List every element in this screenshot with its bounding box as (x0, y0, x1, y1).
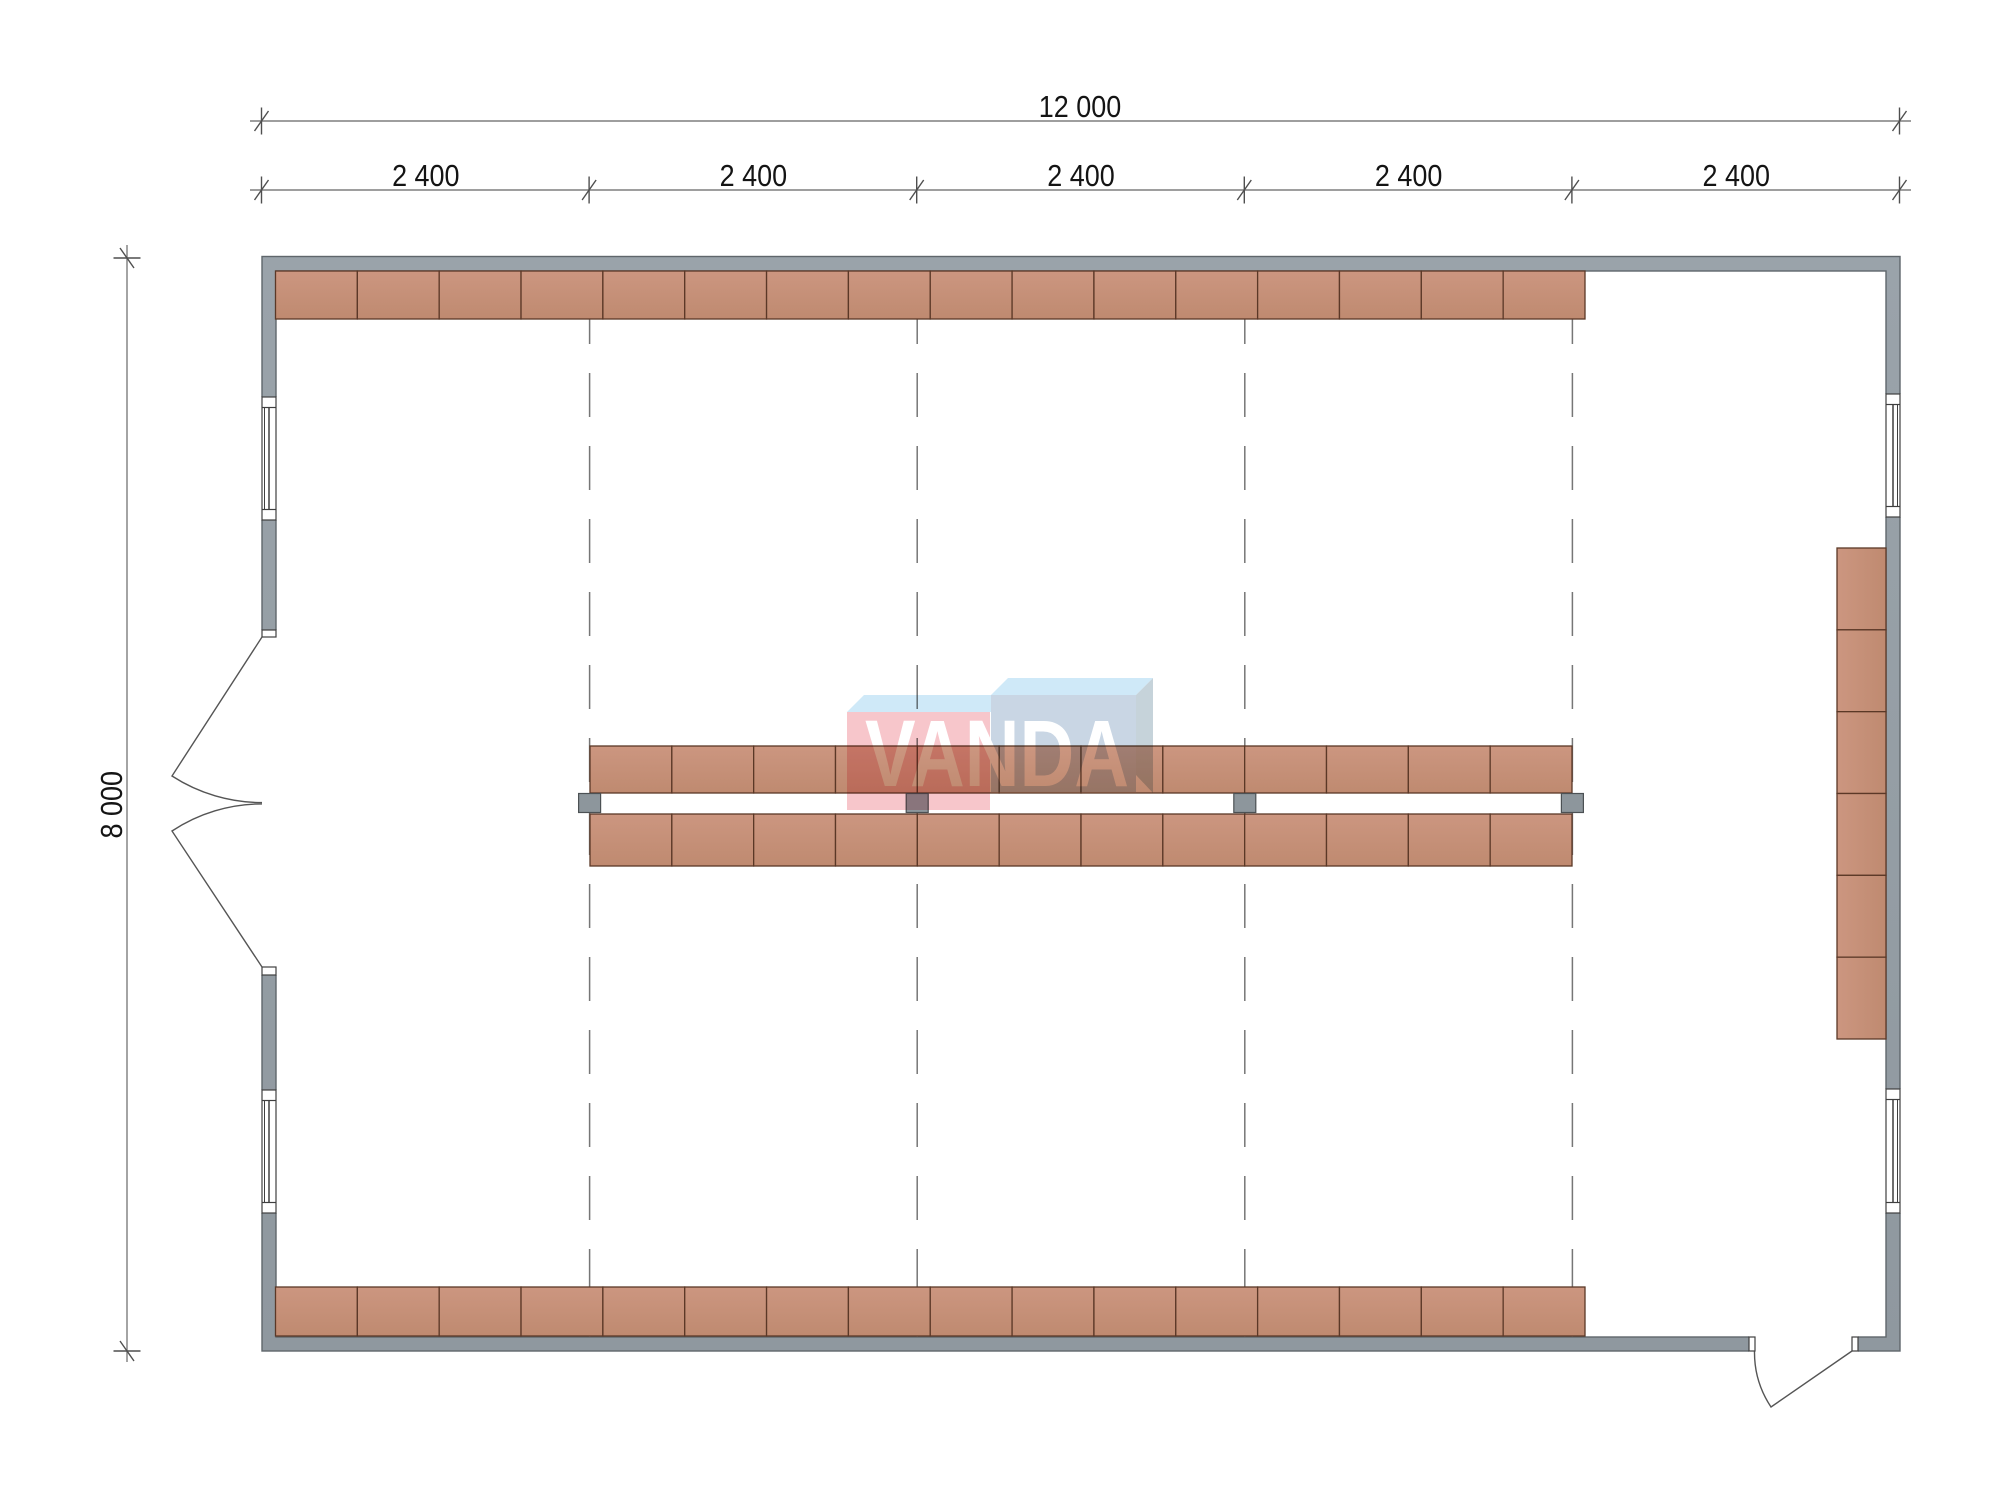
svg-text:VANDA: VANDA (865, 701, 1129, 807)
svg-text:8 000: 8 000 (95, 771, 129, 838)
svg-text:2 400: 2 400 (1375, 159, 1442, 193)
svg-text:2 400: 2 400 (1702, 159, 1769, 193)
svg-text:12 000: 12 000 (1039, 90, 1121, 124)
svg-text:2 400: 2 400 (392, 159, 459, 193)
svg-text:2 400: 2 400 (1047, 159, 1114, 193)
svg-text:2 400: 2 400 (720, 159, 787, 193)
